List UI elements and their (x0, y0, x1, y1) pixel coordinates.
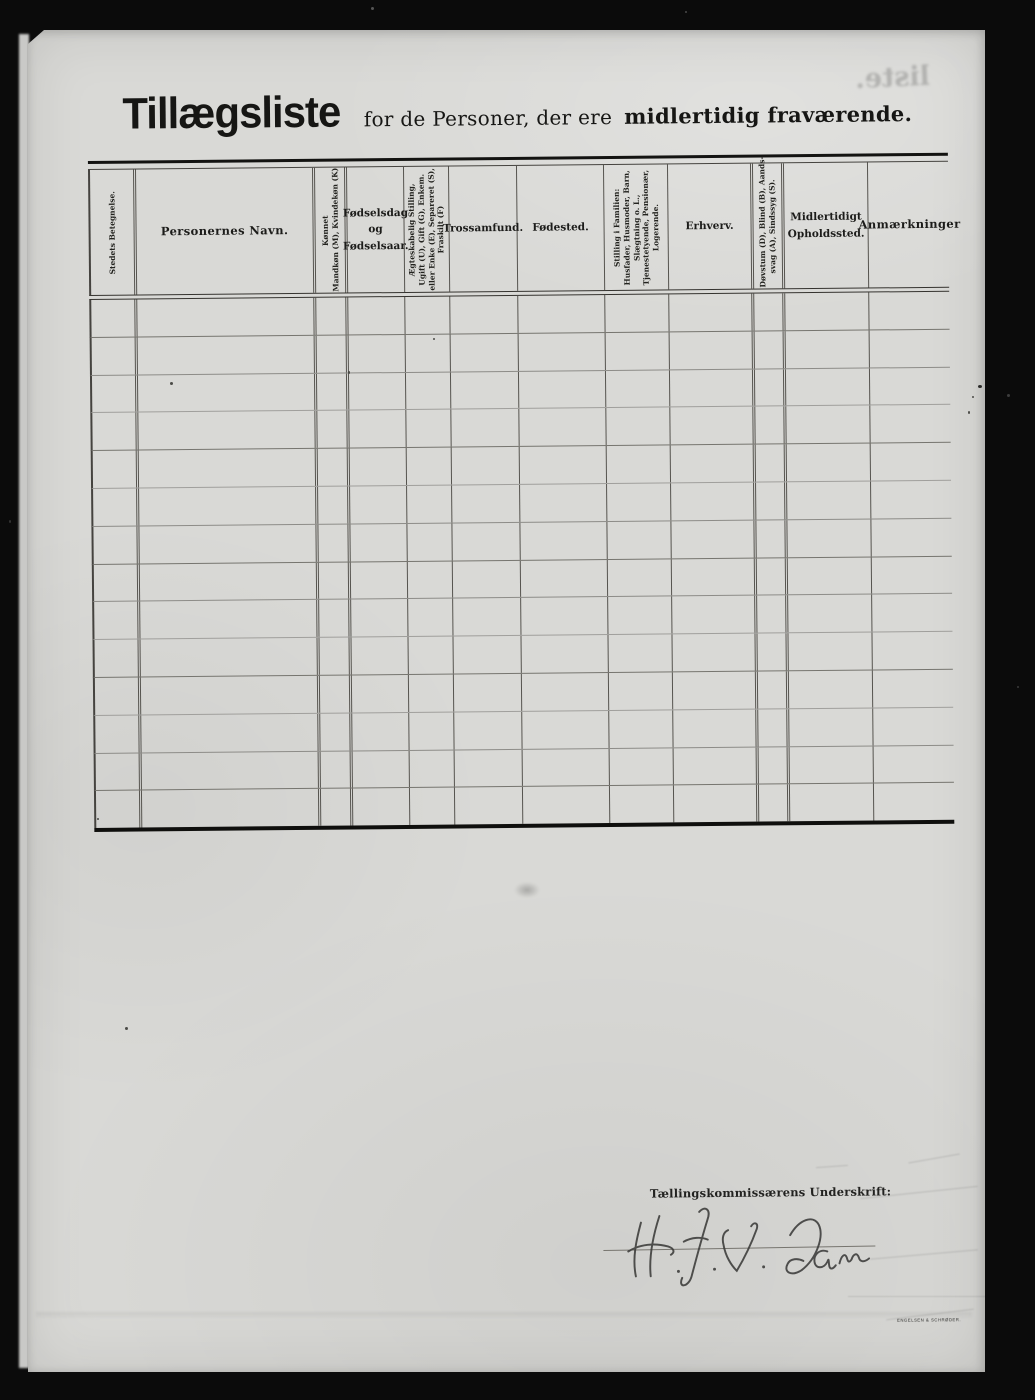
table-cell-fodselsdag (350, 486, 407, 523)
table-cell-stedets-betegnelse (94, 564, 140, 601)
table-cell-konnet (321, 751, 353, 788)
table-cell-fodested (520, 446, 607, 484)
table-cell-anmaerkninger (873, 707, 955, 745)
table-cell-personernes-navn (137, 298, 316, 337)
paper-crease (36, 1312, 972, 1319)
table-cell-midlertidigt (789, 708, 873, 746)
column-header-midlertidigt-opholdssted: Midlertidigt Opholdssted. (784, 163, 869, 289)
table-cell-dovstum (758, 709, 789, 746)
table-cell-stilling-i-familien (606, 370, 670, 407)
table-cell-stilling-i-familien (606, 408, 670, 445)
table-cell-trossamfund (454, 674, 522, 711)
ink-speck (972, 396, 974, 398)
table-cell-personernes-navn (138, 373, 317, 412)
table-cell-aegteskabelig (408, 637, 453, 674)
ink-speck (170, 382, 173, 385)
column-label: Stedets Betegnelse. (107, 171, 118, 293)
census-table: Stedets Betegnelse. Personernes Navn. Kø… (88, 153, 954, 832)
ink-speck (978, 385, 982, 388)
table-cell-aegteskabelig (408, 599, 453, 636)
table-cell-anmaerkninger (874, 783, 956, 821)
table-cell-fodested (519, 408, 606, 446)
table-cell-trossamfund (452, 485, 520, 522)
table-cell-erhverv (673, 709, 758, 747)
table-cell-dovstum (758, 671, 789, 708)
title-emphasis: midlertidig fraværende. (624, 101, 912, 129)
table-cell-anmaerkninger (869, 292, 951, 330)
table-cell-erhverv (671, 520, 756, 558)
dust-speck (9, 520, 11, 523)
table-cell-midlertidigt (788, 633, 872, 671)
table-cell-dovstum (756, 444, 787, 481)
table-cell-erhverv (674, 785, 759, 823)
table-cell-konnet (320, 638, 352, 675)
table-body (89, 292, 954, 828)
table-cell-stilling-i-familien (606, 332, 670, 369)
table-cell-aegteskabelig (406, 410, 451, 447)
table-cell-aegteskabelig (410, 750, 455, 787)
table-cell-personernes-navn (140, 600, 319, 639)
ink-speck (125, 1027, 128, 1030)
table-cell-midlertidigt (790, 746, 874, 784)
table-cell-stedets-betegnelse (93, 526, 139, 563)
table-cell-personernes-navn (141, 638, 320, 677)
table-cell-midlertidigt (787, 481, 871, 519)
table-cell-fodselsdag (350, 448, 407, 485)
table-cell-stilling-i-familien (605, 294, 669, 331)
table-cell-stedets-betegnelse (92, 337, 138, 374)
page-title: Tillægsliste for de Personer, der ere mi… (122, 82, 952, 140)
table-cell-stedets-betegnelse (96, 753, 142, 790)
handwritten-signature (626, 1198, 877, 1292)
table-cell-aegteskabelig (408, 561, 453, 598)
table-cell-stedets-betegnelse (96, 791, 142, 828)
column-label: Erhverv. (685, 218, 733, 235)
table-cell-stilling-i-familien (608, 597, 672, 634)
column-label: Midlertidigt (788, 209, 865, 226)
table-cell-fodselsdag (352, 637, 409, 674)
column-label: Mandkøn (M), Kvindekøn (K) (330, 169, 341, 291)
table-cell-personernes-navn (138, 411, 317, 450)
table-cell-personernes-navn (142, 751, 321, 790)
table-cell-trossamfund (452, 447, 520, 484)
table-cell-fodested (523, 749, 610, 787)
table-cell-midlertidigt (788, 557, 872, 595)
table-cell-personernes-navn (139, 487, 318, 526)
page-edge-strip (19, 34, 29, 1368)
table-cell-konnet (320, 713, 352, 750)
dust-speck (685, 11, 687, 13)
column-header-anmaerkninger: Anmærkninger (868, 162, 951, 288)
column-label: Personernes Navn. (161, 222, 289, 241)
table-cell-midlertidigt (786, 368, 870, 406)
table-cell-midlertidigt (786, 406, 870, 444)
table-cell-stilling-i-familien (607, 483, 671, 520)
column-header-personernes-navn: Personernes Navn. (136, 168, 316, 295)
table-cell-fodselsdag (352, 675, 409, 712)
column-label: Opholdssted. (788, 225, 865, 242)
table-cell-aegteskabelig (407, 523, 452, 560)
table-cell-dovstum (757, 633, 788, 670)
column-label: Anmærkninger (858, 215, 960, 234)
table-cell-fodested (520, 522, 607, 560)
table-cell-fodselsdag (352, 713, 409, 750)
table-cell-fodested (522, 711, 609, 749)
table-cell-midlertidigt (785, 293, 869, 331)
table-cell-fodested (521, 597, 608, 635)
column-label: Ugift (U), Gift (G), Enkem. (416, 168, 427, 290)
table-cell-fodested (521, 560, 608, 598)
table-cell-erhverv (671, 483, 756, 521)
column-header-erhverv: Erhverv. (668, 164, 754, 290)
table-cell-trossamfund (452, 523, 520, 560)
table-cell-stilling-i-familien (607, 521, 671, 558)
table-cell-midlertidigt (787, 519, 871, 557)
column-label: Trossamfund. (443, 220, 523, 237)
table-cell-trossamfund (451, 334, 519, 371)
column-label: Stilling i Familien: (611, 166, 622, 288)
table-cell-fodested (520, 484, 607, 522)
table-cell-midlertidigt (787, 444, 871, 482)
table-cell-anmaerkninger (871, 518, 953, 556)
table-cell-stilling-i-familien (609, 710, 673, 747)
table-cell-dovstum (759, 785, 790, 822)
column-label: Logerende. (650, 166, 661, 288)
table-cell-erhverv (674, 747, 759, 785)
table-cell-trossamfund (453, 560, 521, 597)
table-cell-konnet (316, 298, 348, 335)
table-cell-konnet (320, 675, 352, 712)
table-cell-anmaerkninger (873, 670, 955, 708)
column-label: Slægtning o. L., (631, 166, 642, 288)
table-cell-stedets-betegnelse (91, 300, 137, 337)
table-cell-stedets-betegnelse (95, 715, 141, 752)
table-cell-stilling-i-familien (609, 672, 673, 709)
table-cell-konnet (318, 449, 350, 486)
table-cell-stedets-betegnelse (93, 489, 139, 526)
table-cell-personernes-navn (139, 525, 318, 564)
table-cell-trossamfund (455, 749, 523, 786)
table-cell-konnet (317, 373, 349, 410)
table-cell-stedets-betegnelse (93, 451, 139, 488)
table-cell-trossamfund (451, 409, 519, 446)
ink-speck (97, 818, 99, 820)
table-cell-konnet (319, 600, 351, 637)
table-cell-trossamfund (453, 598, 521, 635)
table-cell-fodested (519, 371, 606, 409)
table-cell-fodselsdag (349, 410, 406, 447)
table-cell-fodselsdag (351, 599, 408, 636)
table-cell-trossamfund (453, 636, 521, 673)
table-cell-midlertidigt (786, 330, 870, 368)
table-cell-erhverv (672, 558, 757, 596)
table-cell-trossamfund (450, 296, 518, 333)
table-cell-stedets-betegnelse (92, 375, 138, 412)
table-cell-konnet (321, 789, 353, 826)
scanned-census-form: { "title": { "main": "Tillægsliste", "mi… (0, 0, 1035, 1400)
column-label: Tjenestetyende, Pensionær, (640, 166, 651, 288)
table-header-row: Stedets Betegnelse. Personernes Navn. Kø… (88, 162, 949, 296)
table-cell-aegteskabelig (409, 674, 454, 711)
table-cell-fodselsdag (349, 335, 406, 372)
table-cell-konnet (317, 335, 349, 372)
table-cell-fodested (523, 786, 610, 824)
table-cell-stedets-betegnelse (94, 602, 140, 639)
table-cell-personernes-navn (138, 336, 317, 375)
table-cell-stilling-i-familien (608, 559, 672, 596)
table-cell-fodselsdag (349, 373, 406, 410)
table-cell-konnet (318, 486, 350, 523)
table-cell-anmaerkninger (871, 443, 953, 481)
table-cell-aegteskabelig (410, 788, 455, 825)
table-cell-midlertidigt (788, 595, 872, 633)
table-cell-aegteskabelig (405, 297, 450, 334)
faint-line (848, 1296, 1013, 1297)
table-cell-personernes-navn (142, 789, 321, 828)
table-cell-dovstum (754, 293, 785, 330)
table-cell-anmaerkninger (872, 594, 954, 632)
table-cell-erhverv (672, 596, 757, 634)
table-cell-fodselsdag (348, 297, 405, 334)
column-header-stilling-i-familien: Stilling i Familien: Husfader, Husmoder,… (604, 164, 669, 290)
column-label: og (343, 221, 409, 238)
table-cell-personernes-navn (140, 562, 319, 601)
table-cell-dovstum (756, 520, 787, 557)
table-cell-trossamfund (451, 371, 519, 408)
table-cell-stedets-betegnelse (92, 413, 138, 450)
column-label: Kønnet (320, 169, 331, 291)
table-cell-aegteskabelig (407, 486, 452, 523)
column-label: Fødested. (532, 220, 589, 237)
smudge (514, 882, 540, 898)
table-cell-konnet (319, 562, 351, 599)
table-cell-fodselsdag (350, 524, 407, 561)
dust-speck (1017, 686, 1019, 688)
table-cell-midlertidigt (790, 784, 874, 822)
ink-speck (968, 411, 970, 414)
table-cell-trossamfund (455, 787, 523, 824)
dust-speck (1007, 394, 1010, 397)
table-cell-anmaerkninger (872, 556, 954, 594)
table-cell-erhverv (671, 445, 756, 483)
table-cell-anmaerkninger (870, 367, 952, 405)
table-cell-midlertidigt (789, 670, 873, 708)
table-cell-dovstum (757, 596, 788, 633)
table-cell-erhverv (670, 331, 755, 369)
table-cell-aegteskabelig (406, 334, 451, 371)
table-cell-aegteskabelig (407, 448, 452, 485)
table-cell-personernes-navn (141, 714, 320, 753)
printed-content: Tillægsliste for de Personer, der ere mi… (27, 21, 997, 1372)
column-header-fodested: Fødested. (517, 165, 605, 291)
table-cell-fodselsdag (351, 562, 408, 599)
table-cell-personernes-navn (139, 449, 318, 488)
title-mid: for de Personer, der ere (364, 105, 613, 131)
column-label: Fødselsaar. (343, 238, 409, 255)
column-header-dovstum: Døvstum (D), Blind (B), Aands- svag (A),… (753, 163, 785, 288)
table-cell-fodested (522, 673, 609, 711)
table-cell-stedets-betegnelse (95, 677, 141, 714)
table-cell-fodselsdag (353, 751, 410, 788)
table-cell-dovstum (755, 331, 786, 368)
table-cell-erhverv (672, 634, 757, 672)
table-cell-konnet (317, 411, 349, 448)
table-cell-dovstum (755, 369, 786, 406)
table-cell-aegteskabelig (409, 712, 454, 749)
title-main: Tillægsliste (122, 88, 340, 140)
table-cell-stilling-i-familien (608, 635, 672, 672)
table-cell-anmaerkninger (872, 632, 954, 670)
table-cell-dovstum (756, 482, 787, 519)
table-cell-aegteskabelig (406, 372, 451, 409)
table-cell-erhverv (669, 294, 754, 332)
column-header-trossamfund: Trossamfund. (449, 166, 518, 292)
table-cell-stilling-i-familien (607, 446, 671, 483)
table-cell-fodested (519, 333, 606, 371)
table-cell-stedets-betegnelse (95, 640, 141, 677)
ink-speck (433, 338, 435, 340)
scanned-page: Tillægsliste for de Personer, der ere mi… (28, 30, 985, 1372)
table-cell-fodested (521, 635, 608, 673)
table-cell-stilling-i-familien (610, 786, 674, 823)
table-cell-erhverv (670, 369, 755, 407)
table-cell-anmaerkninger (874, 745, 956, 783)
column-label: eller Enke (E), Separeret (S), (426, 168, 437, 290)
table-cell-erhverv (670, 407, 755, 445)
ink-speck (348, 371, 350, 374)
table-cell-trossamfund (454, 712, 522, 749)
column-label: svag (A), Sindssyg (S). (767, 165, 778, 287)
table-cell-erhverv (673, 672, 758, 710)
table-cell-stilling-i-familien (610, 748, 674, 785)
table-cell-dovstum (757, 558, 788, 595)
table-cell-fodselsdag (353, 788, 410, 825)
column-header-fodselsdag: Fødselsdag og Fødselsaar. (347, 167, 405, 293)
table-cell-personernes-navn (141, 676, 320, 715)
column-label: Fødselsdag (343, 205, 409, 222)
column-label: Husfader, Husmoder, Barn, (621, 166, 632, 288)
table-cell-anmaerkninger (871, 481, 953, 519)
table-cell-fodested (518, 295, 605, 333)
column-header-stedets-betegnelse: Stedets Betegnelse. (90, 170, 137, 295)
table-cell-konnet (318, 524, 350, 561)
table-cell-anmaerkninger (870, 330, 952, 368)
table-cell-dovstum (755, 407, 786, 444)
dust-speck (371, 7, 374, 10)
table-cell-anmaerkninger (870, 405, 952, 443)
table-cell-dovstum (759, 747, 790, 784)
ink-bleed-text: liste. (854, 61, 930, 95)
